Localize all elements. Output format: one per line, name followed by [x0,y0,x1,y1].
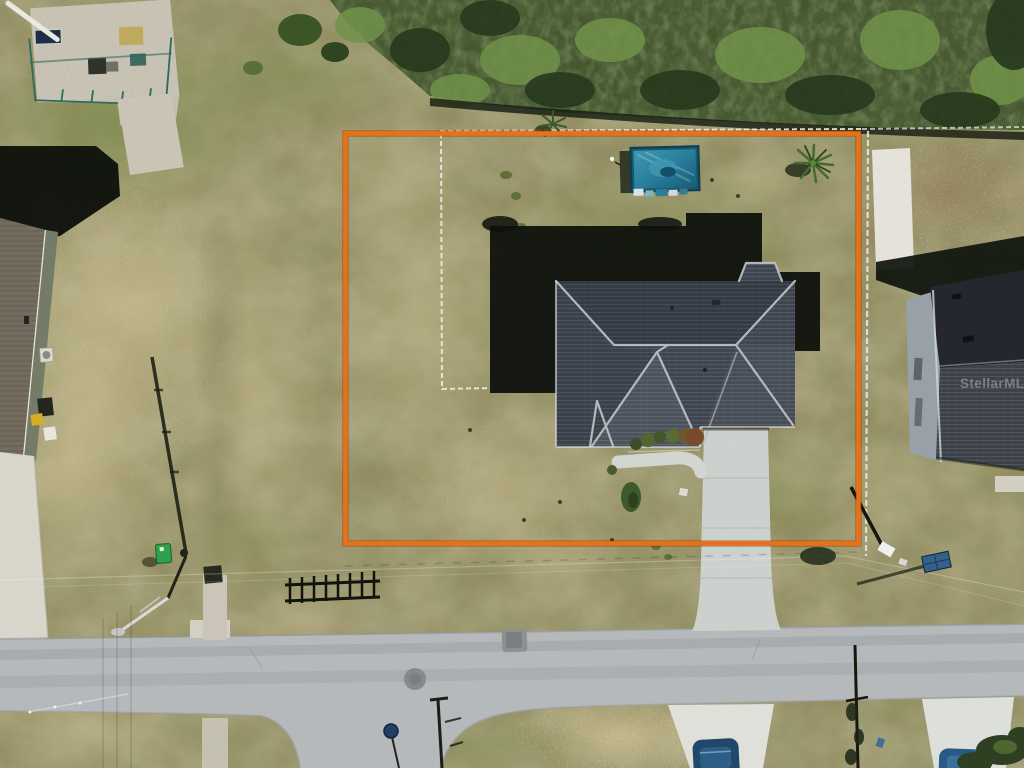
neighbor-rear-pad [995,476,1024,492]
house-roof [556,263,795,447]
red-shrub [686,428,704,446]
roof-vent [712,300,720,306]
mailbox-pad [203,575,227,640]
streetlight-lamp [111,628,125,636]
parked-vehicle-1 [692,738,740,768]
sidewalk-stub [202,718,228,768]
lawn-bush [278,14,322,46]
trampoline-pool [619,146,699,197]
mls-watermark: StellarMLS [960,376,1024,391]
neighbor-roof-upper [930,270,1024,368]
aerial-photo-canvas: StellarMLS [0,0,1024,768]
white-debris [610,157,614,161]
utility-lid [678,487,688,496]
equipment-cabinet [88,58,107,75]
dark-bush [800,547,836,565]
stop-sign-top [384,724,398,738]
aerial-photo [0,0,1024,768]
yellow-equipment [30,413,44,426]
equipment-panel [119,26,144,45]
